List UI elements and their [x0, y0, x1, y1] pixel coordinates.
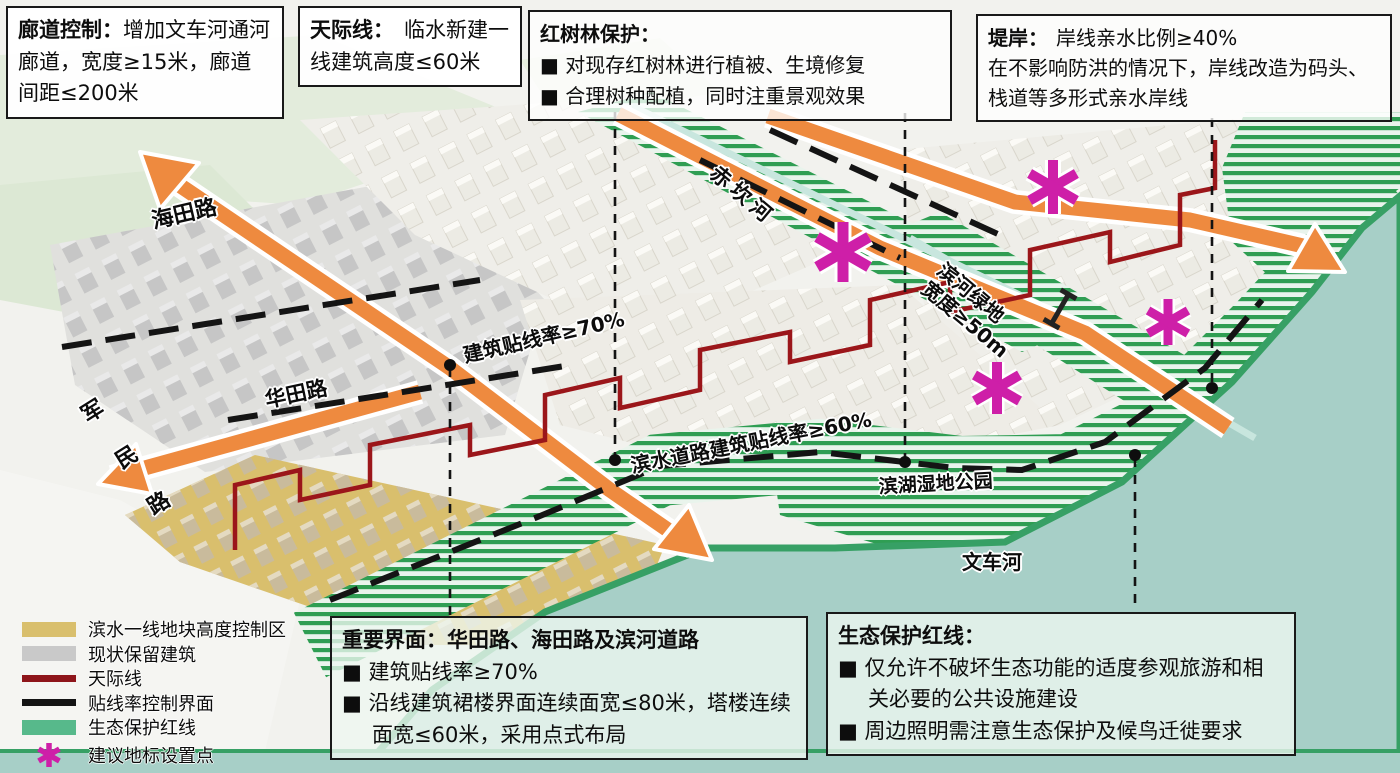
callout-bullet: ■ 沿线建筑裙楼界面连续面宽≤80米，塔楼连续面宽≤60米，采用点式布局	[342, 688, 796, 751]
callout-mangrove: 红树林保护： ■ 对现存红树林进行植被、生境修复 ■ 合理树种配植，同时注重景观…	[528, 10, 952, 121]
callout-bullet: ■ 仅允许不破坏生态功能的适度参观旅游和相关必要的公共设施建设	[838, 653, 1284, 716]
callout-bullet: ■ 合理树种配植，同时注重景观效果	[540, 81, 940, 112]
callout-title: 红树林保护：	[540, 19, 940, 50]
landmark-asterisk	[1148, 299, 1188, 345]
legend-swatch-gray-icon	[22, 646, 76, 661]
callout-title: 廊道控制：	[18, 18, 123, 42]
callout-corridor-control: 廊道控制：增加文车河通河廊道，宽度≥15米，廊道间距≤200米	[6, 6, 284, 119]
callout-body: 在不影响防洪的情况下，岸线改造为码头、栈道等多形式亲水岸线	[988, 53, 1380, 113]
callout-eco-redline: 生态保护红线： ■ 仅允许不破坏生态功能的适度参观旅游和相关必要的公共设施建设 …	[826, 612, 1296, 756]
callout-bullet: ■ 建筑贴线率≥70%	[342, 657, 796, 689]
callout-title: 天际线：	[310, 18, 394, 42]
legend-item-skyline: 天际线	[22, 666, 286, 691]
legend-swatch-tan-icon	[22, 622, 76, 637]
legend-item-landmark: 建议地标设置点	[22, 740, 286, 770]
callout-skyline: 天际线：临水新建一线建筑高度≤60米	[298, 6, 522, 87]
callout-important-interface: 重要界面：华田路、海田路及滨河道路 ■ 建筑贴线率≥70% ■ 沿线建筑裙楼界面…	[330, 616, 808, 760]
legend-item-interface: 贴线率控制界面	[22, 691, 286, 716]
legend-swatch-green-icon	[22, 720, 76, 735]
callout-title: 生态保护红线：	[838, 621, 1284, 653]
callout-headline: 岸线亲水比例≥40%	[1056, 26, 1237, 50]
legend-asterisk-icon	[22, 741, 76, 769]
callout-title: 重要界面：华田路、海田路及滨河道路	[342, 625, 796, 657]
callout-embankment: 堤岸：岸线亲水比例≥40% 在不影响防洪的情况下，岸线改造为码头、栈道等多形式亲…	[976, 14, 1392, 122]
river-label-wenche: 文车河	[962, 546, 1022, 575]
legend-line-red-icon	[22, 675, 76, 682]
legend: 滨水一线地块高度控制区 现状保留建筑 天际线 贴线率控制界面 生态保护红线	[22, 617, 286, 770]
urban-planning-diagram: 海田路 赤坎河 军 民 路 华田路 建筑贴线率≥70% 滨河绿地 宽度≥50m …	[0, 0, 1400, 773]
legend-item-height-control: 滨水一线地块高度控制区	[22, 617, 286, 642]
callout-bullet: ■ 对现存红树林进行植被、生境修复	[540, 50, 940, 81]
legend-item-existing-buildings: 现状保留建筑	[22, 642, 286, 667]
callout-title: 堤岸：	[988, 26, 1048, 50]
legend-item-eco-redline: 生态保护红线	[22, 715, 286, 740]
callout-bullet: ■ 周边照明需注意生态保护及候鸟迁徙要求	[838, 716, 1284, 748]
legend-line-black-icon	[22, 699, 76, 706]
